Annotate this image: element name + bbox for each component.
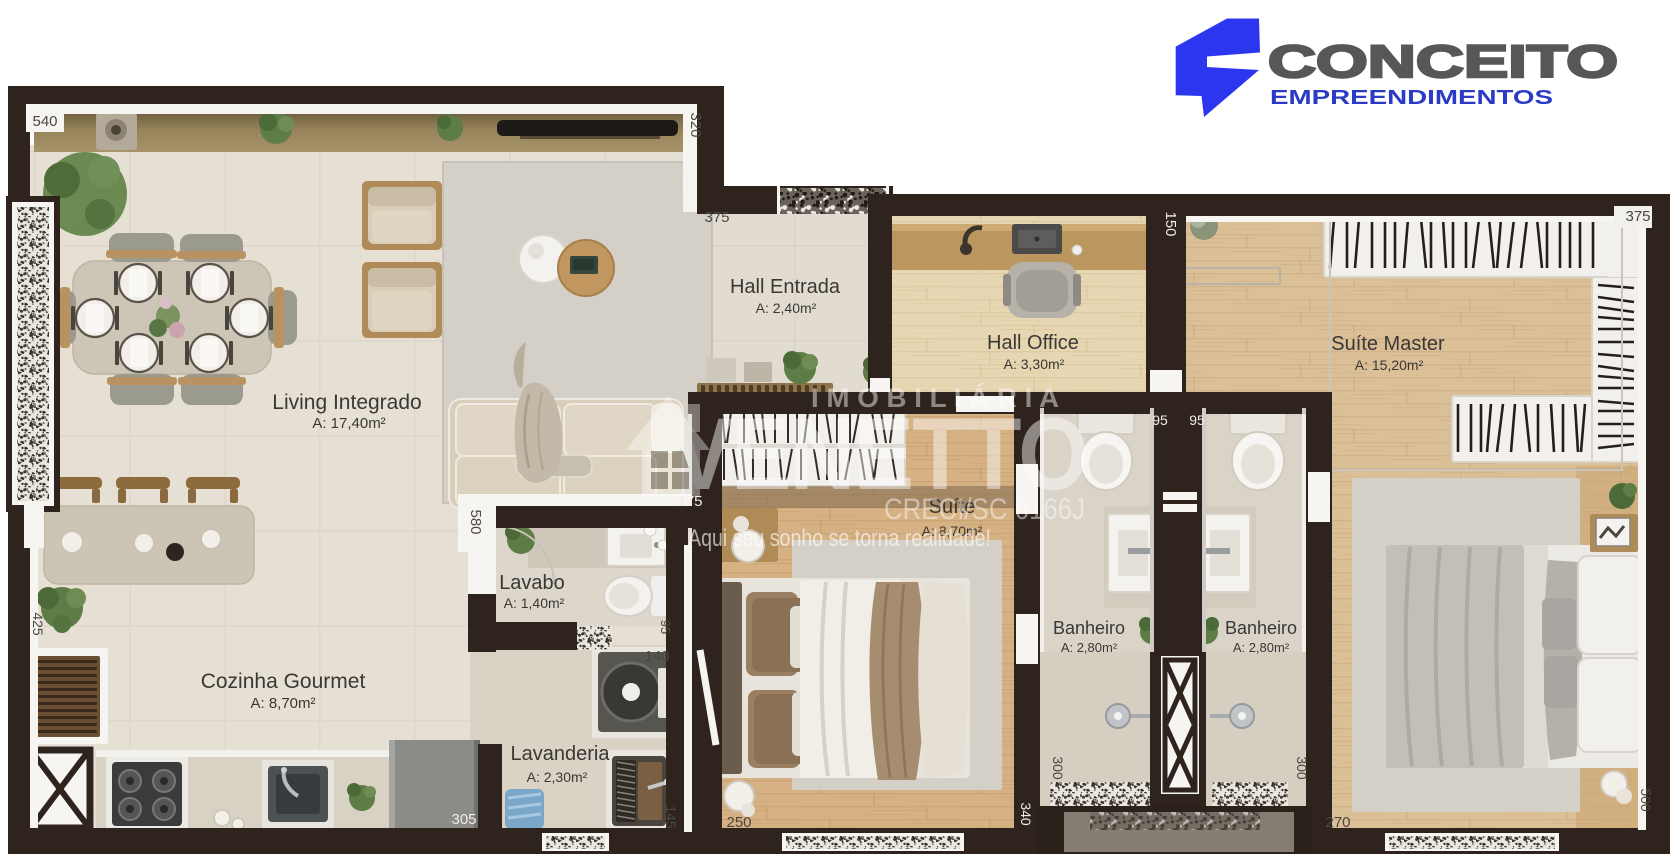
svg-text:Suíte Master: Suíte Master [1331, 333, 1445, 355]
svg-text:145: 145 [663, 805, 679, 829]
svg-text:EMPREENDIMENTOS: EMPREENDIMENTOS [1270, 87, 1553, 109]
svg-text:A: 8,70m²: A: 8,70m² [250, 695, 315, 712]
svg-text:150: 150 [1162, 211, 1179, 236]
svg-text:A: 1,40m²: A: 1,40m² [504, 595, 565, 611]
svg-text:A: 15,20m²: A: 15,20m² [1355, 357, 1424, 373]
svg-text:A: 2,30m²: A: 2,30m² [527, 769, 588, 785]
svg-text:Hall Office: Hall Office [987, 332, 1079, 354]
svg-text:Lavabo: Lavabo [499, 572, 565, 594]
svg-text:500: 500 [1638, 788, 1654, 812]
svg-text:425: 425 [30, 612, 46, 636]
svg-text:300: 300 [1294, 756, 1310, 780]
svg-text:375: 375 [704, 209, 729, 226]
svg-text:95: 95 [1152, 412, 1168, 428]
svg-text:305: 305 [451, 811, 476, 828]
svg-text:A: 2,80m²: A: 2,80m² [1061, 640, 1118, 655]
svg-text:580: 580 [467, 509, 484, 534]
svg-text:140: 140 [644, 648, 669, 665]
svg-text:Cozinha Gourmet: Cozinha Gourmet [201, 670, 366, 693]
svg-text:Living Integrado: Living Integrado [272, 391, 421, 414]
svg-text:300: 300 [1050, 756, 1066, 780]
svg-text:A: 2,40m²: A: 2,40m² [756, 300, 817, 316]
svg-text:540: 540 [32, 113, 57, 130]
svg-text:320: 320 [687, 112, 704, 137]
svg-text:95: 95 [1189, 412, 1205, 428]
svg-text:Banheiro: Banheiro [1053, 618, 1125, 638]
svg-text:Banheiro: Banheiro [1225, 618, 1297, 638]
svg-text:A: 3,30m²: A: 3,30m² [1004, 356, 1065, 372]
svg-text:A: 17,40m²: A: 17,40m² [312, 415, 385, 432]
svg-text:270: 270 [1325, 814, 1350, 831]
svg-text:375: 375 [1625, 208, 1650, 225]
svg-text:340: 340 [1018, 802, 1034, 826]
svg-text:250: 250 [726, 814, 751, 831]
svg-text:CONCEITO: CONCEITO [1268, 36, 1618, 87]
svg-text:CRECI/SC 6166J: CRECI/SC 6166J [884, 493, 1085, 526]
svg-text:A: 2,80m²: A: 2,80m² [1233, 640, 1290, 655]
svg-text:Aqui seu sonho se torna realid: Aqui seu sonho se torna realidade! [688, 525, 991, 552]
svg-text:Hall Entrada: Hall Entrada [730, 276, 841, 298]
svg-text:Lavanderia: Lavanderia [511, 743, 611, 765]
svg-text:95: 95 [658, 620, 673, 634]
